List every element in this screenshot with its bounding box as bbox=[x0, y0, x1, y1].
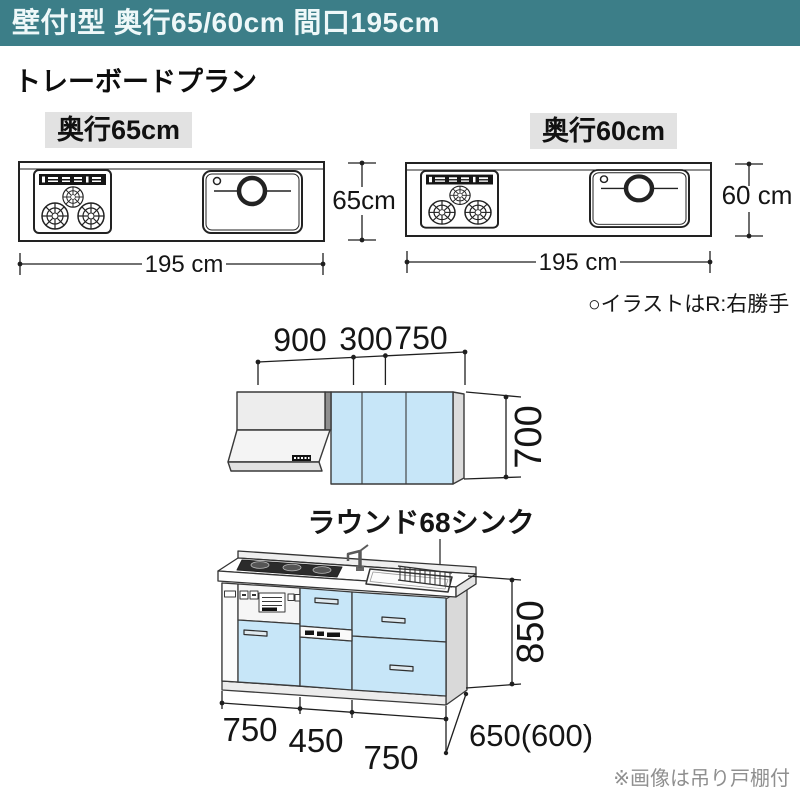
wall-dim-750: 750 bbox=[394, 320, 447, 356]
diagram-canvas: 65cm 195 cm 60 cm bbox=[0, 0, 800, 800]
base-cabinet bbox=[222, 583, 467, 705]
base-dim-depth: 650(600) bbox=[469, 718, 593, 753]
wall-cabinet bbox=[228, 392, 464, 484]
kitchen-spec-sheet: 壁付I型 奥行65/60cm 間口195cm トレーボードプラン 奥行65cm … bbox=[0, 0, 800, 800]
width-value-65: 195 cm bbox=[145, 251, 224, 278]
stove-plan-60 bbox=[421, 171, 498, 228]
drawer-middle-top bbox=[300, 588, 352, 630]
side-vent bbox=[225, 591, 236, 597]
wall-cabinet-doors bbox=[331, 392, 453, 484]
base-dim-850: 850 bbox=[510, 600, 552, 663]
hood-duct-strip bbox=[325, 392, 331, 430]
sink-plan-65 bbox=[203, 171, 302, 233]
base-side-panel bbox=[446, 586, 467, 705]
sink-plan-60 bbox=[590, 170, 689, 227]
plan-view-60: 60 cm 195 cm bbox=[405, 162, 793, 276]
plan-view-65: 65cm 195 cm bbox=[18, 161, 396, 278]
wall-dim-700: 700 bbox=[508, 405, 550, 468]
base-dim-450: 450 bbox=[288, 722, 343, 759]
stove-plan-65 bbox=[34, 170, 111, 233]
depth-value-65: 65cm bbox=[332, 185, 396, 215]
wall-dim-900: 900 bbox=[273, 322, 326, 358]
width-value-60: 195 cm bbox=[539, 249, 618, 276]
depth-value-60: 60 cm bbox=[722, 180, 793, 210]
range-hood bbox=[228, 392, 330, 471]
wall-cabinet-side-panel bbox=[453, 392, 464, 484]
base-dim-750-right: 750 bbox=[363, 739, 418, 776]
wall-dim-300: 300 bbox=[339, 321, 392, 357]
stove-control-panel bbox=[238, 584, 301, 624]
drawer-sink-top bbox=[352, 592, 446, 642]
base-dim-750-left: 750 bbox=[222, 711, 277, 748]
sink-label: ラウンド68シンク bbox=[307, 507, 534, 538]
door-middle bbox=[300, 637, 352, 690]
